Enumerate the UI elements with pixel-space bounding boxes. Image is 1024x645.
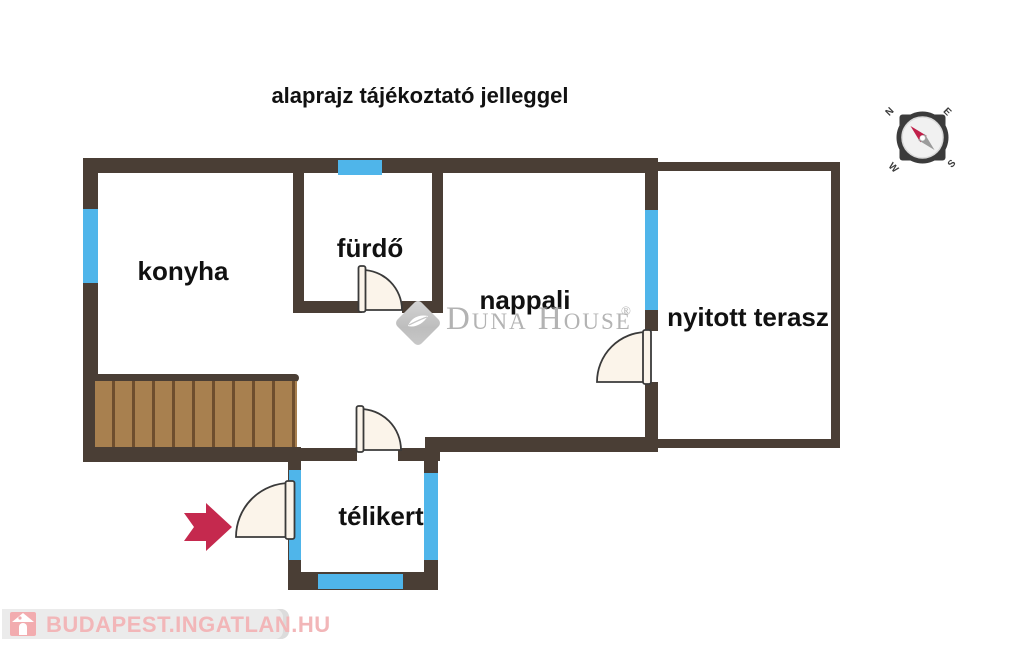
- entrance-arrow-icon: [184, 503, 232, 551]
- compass-icon: N E S W: [885, 100, 960, 175]
- compass-letter-s: S: [946, 158, 959, 171]
- door-telikert-top: [357, 406, 402, 452]
- door-furdo: [359, 266, 403, 312]
- doors-overlay: [0, 0, 1024, 645]
- door-nappali-terasz: [597, 330, 651, 384]
- footer-watermark: BUDAPEST.INGATLAN.HU: [2, 609, 289, 639]
- ingatlan-house-icon: [9, 611, 37, 637]
- compass-letter-n: N: [885, 106, 897, 119]
- footer-site-text: BUDAPEST.INGATLAN.HU: [46, 609, 331, 639]
- door-entrance: [236, 481, 295, 539]
- compass-letter-w: W: [886, 161, 901, 175]
- floor-plan: alaprajz tájékoztató jelleggel: [0, 0, 1024, 645]
